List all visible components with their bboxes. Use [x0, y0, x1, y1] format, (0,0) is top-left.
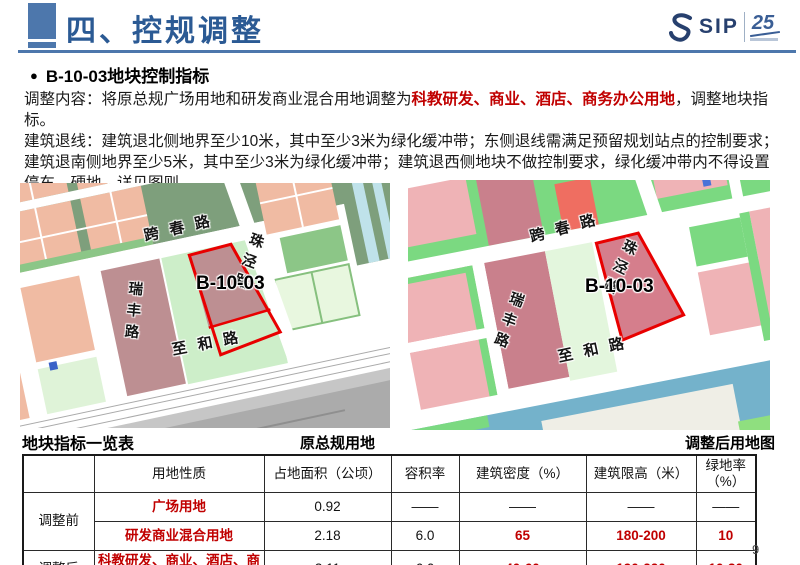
- section-title-line: ●B-10-03地块控制指标: [30, 62, 209, 87]
- sip-logo: SIP 25: [668, 7, 778, 47]
- group-after: 调整后: [23, 550, 94, 565]
- far-cell: 6.0: [391, 521, 459, 550]
- height-cell: 180-200: [586, 521, 696, 550]
- table-title: 地块指标一览表: [22, 430, 134, 454]
- nature-cell: 科教研发、商业、酒店、商务办公: [94, 550, 264, 565]
- para-line1-prefix: 调整内容：将原总规广场用地和研发商业混合用地调整为: [24, 91, 412, 108]
- header-far: 容积率: [391, 455, 459, 492]
- para-line-1: 调整内容：将原总规广场用地和研发商业混合用地调整为科教研发、商业、酒店、商务办公…: [24, 89, 796, 131]
- parcel-label-b1003: B-10-03: [585, 276, 654, 298]
- density-cell: 40-60: [459, 550, 586, 565]
- far-cell: ——: [391, 492, 459, 521]
- green-cell: 10: [696, 521, 756, 550]
- header-accent-bar: [28, 42, 56, 48]
- table-row: 调整前 广场用地 0.92 —— —— —— ——: [23, 492, 756, 521]
- green-cell: ——: [696, 492, 756, 521]
- header-rule: [18, 50, 796, 53]
- sip-s-icon: [668, 12, 694, 42]
- left-map-caption: 原总规用地: [300, 432, 375, 453]
- header-height: 建筑限高（米）: [586, 455, 696, 492]
- area-cell: 0.92: [264, 492, 391, 521]
- slide: 四、控规调整 SIP 25 ●B-10-03地块控制指标 调整内容：将原总规广场…: [0, 0, 800, 565]
- anniversary-badge: 25: [750, 13, 778, 41]
- page-title: 四、控规调整: [66, 6, 264, 50]
- green-cell: 10-30: [696, 550, 756, 565]
- sip-logo-text: SIP: [699, 15, 739, 39]
- parcel-label-b1003: B-10-03: [196, 273, 265, 295]
- logo-divider: [744, 12, 745, 42]
- header-land-nature: 用地性质: [94, 455, 264, 492]
- indicator-table: 用地性质 占地面积（公顷） 容积率 建筑密度（%） 建筑限高（米） 绿地率（%）…: [22, 454, 757, 565]
- area-cell: 2.18: [264, 521, 391, 550]
- right-map-caption: 调整后用地图: [685, 432, 775, 453]
- header-blank: [23, 455, 94, 492]
- section-title: B-10-03地块控制指标: [46, 67, 209, 86]
- header-density: 建筑密度（%）: [459, 455, 586, 492]
- para-line-2: 建筑退线：建筑退北侧地界至少10米，其中至少3米为绿化缓冲带；东侧退线需满足预留…: [24, 131, 796, 152]
- header-green: 绿地率（%）: [696, 455, 756, 492]
- logo-fine-print-bar: [750, 38, 778, 41]
- adjustment-paragraph: 调整内容：将原总规广场用地和研发商业混合用地调整为科教研发、商业、酒店、商务办公…: [24, 89, 796, 194]
- far-cell: 6.0: [391, 550, 459, 565]
- height-cell: ——: [586, 492, 696, 521]
- nature-cell: 广场用地: [94, 492, 264, 521]
- para-line1-highlight: 科教研发、商业、酒店、商务办公用地: [412, 91, 676, 108]
- nature-cell: 研发商业混合用地: [94, 521, 264, 550]
- table-row: 研发商业混合用地 2.18 6.0 65 180-200 10: [23, 521, 756, 550]
- right-landuse-map: 跨春路 珠泾路 瑞丰路 至和路 B-10-03: [408, 180, 770, 430]
- area-cell: 3.11: [264, 550, 391, 565]
- height-cell: 190-220: [586, 550, 696, 565]
- density-cell: 65: [459, 521, 586, 550]
- header-area: 占地面积（公顷）: [264, 455, 391, 492]
- para-line-3: 建筑退南侧地界至少5米，其中至少3米为绿化缓冲带；建筑退西侧地块不做控制要求，绿…: [24, 152, 796, 173]
- table-row: 调整后 科教研发、商业、酒店、商务办公 3.11 6.0 40-60 190-2…: [23, 550, 756, 565]
- group-before: 调整前: [23, 492, 94, 550]
- left-landuse-map: 跨春路 珠泾路 瑞丰路 至和路 B-10-03: [20, 183, 390, 428]
- bullet-icon: ●: [30, 68, 38, 83]
- page-number: 9: [752, 542, 759, 557]
- density-cell: ——: [459, 492, 586, 521]
- table-header-row: 用地性质 占地面积（公顷） 容积率 建筑密度（%） 建筑限高（米） 绿地率（%）: [23, 455, 756, 492]
- header-accent-square: [28, 3, 56, 39]
